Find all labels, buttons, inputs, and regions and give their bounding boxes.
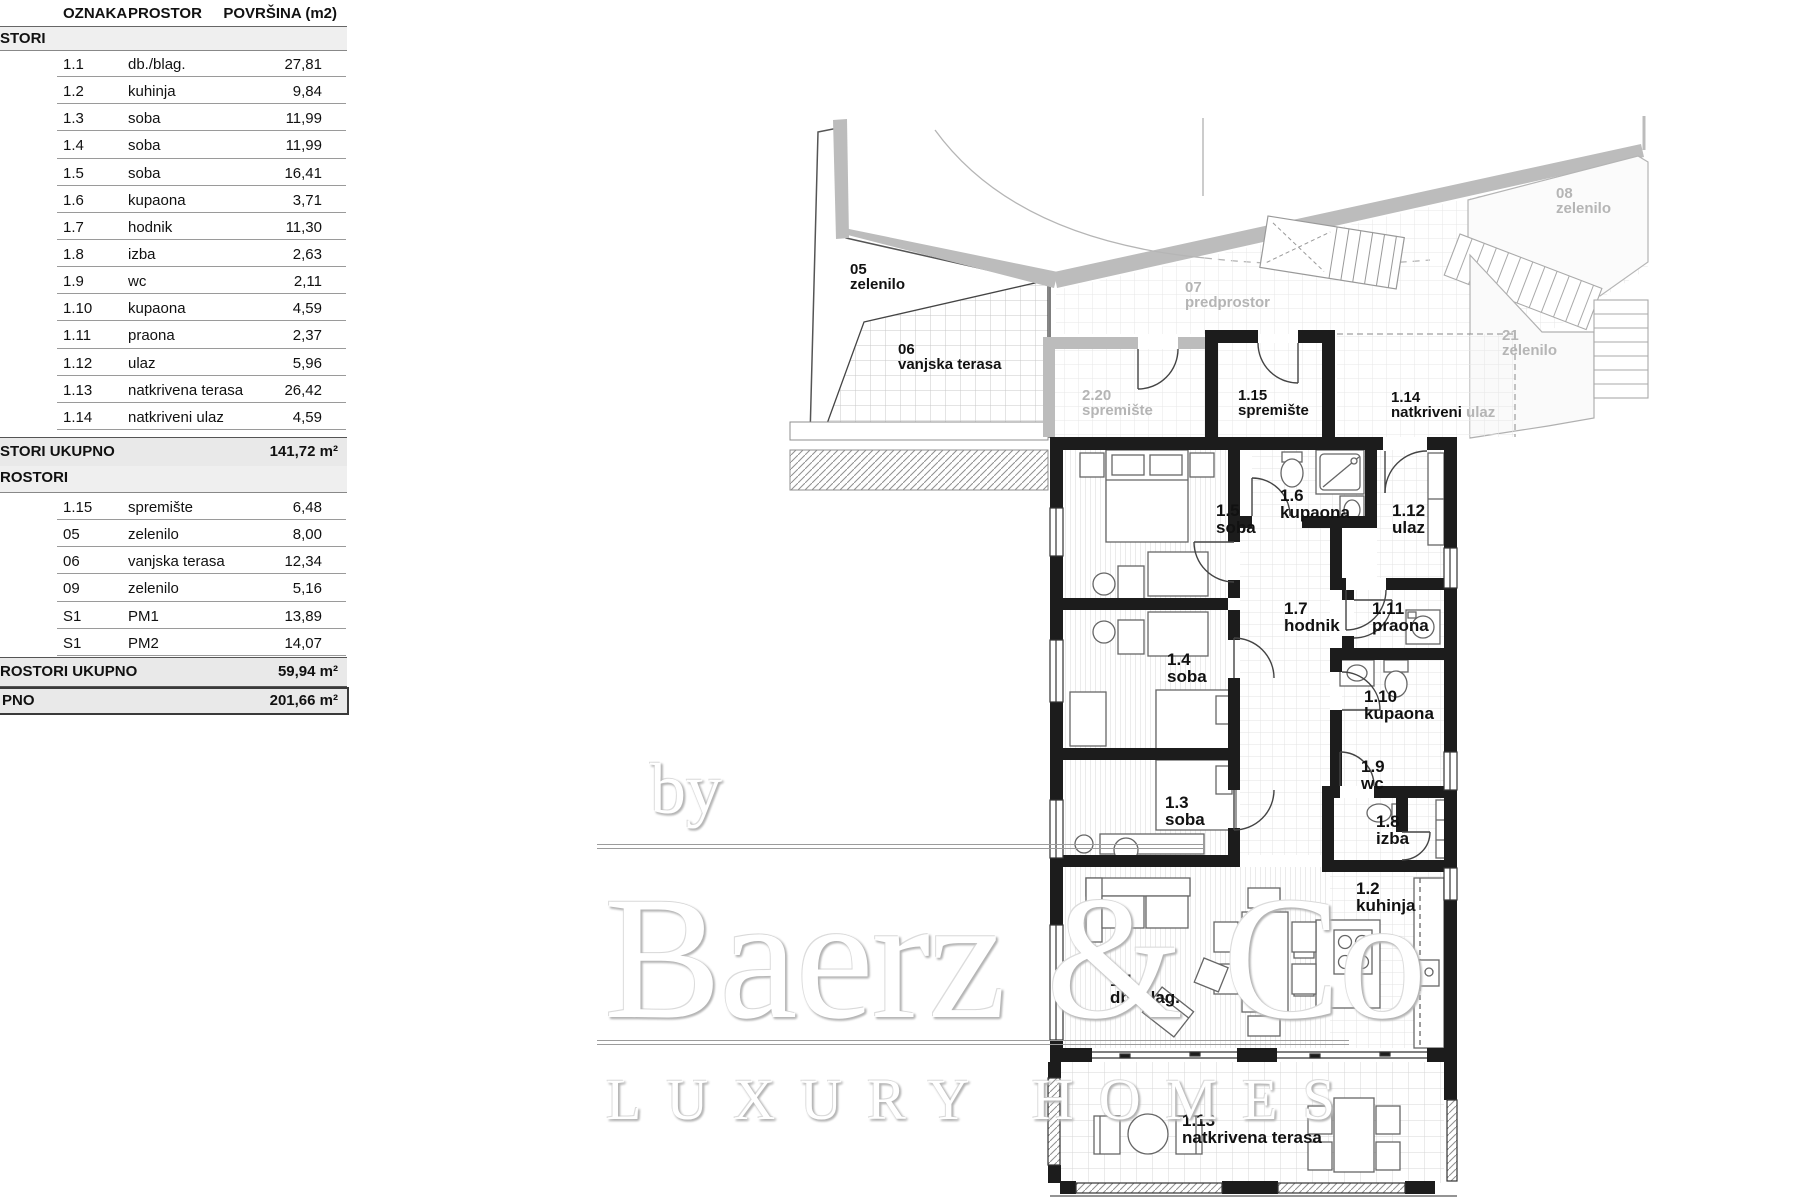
table-row: 1.11 praona 2,37 — [0, 321, 347, 348]
table-row: S1 PM1 13,89 — [0, 602, 347, 629]
table-row: 1.2 kuhinja 9,84 — [0, 77, 347, 104]
table-row: 1.5 soba 16,41 — [0, 159, 347, 186]
col-oznaka: OZNAKA — [63, 5, 127, 22]
section1-rows: 1.1 db./blag. 27,81 1.2 kuhinja 9,84 1.3… — [0, 50, 347, 430]
wardrobe — [1070, 692, 1106, 746]
section1-total: STORI UKUPNO 141,72 m² — [0, 437, 347, 467]
covered-entry-floor — [1337, 334, 1515, 437]
watermark-rule-top — [597, 844, 1205, 849]
section1-band: STORI — [0, 27, 347, 51]
table-header: OZNAKA PROSTOR POVRŠINA (m2) — [0, 0, 347, 27]
section2-band: ROSTORI — [0, 466, 347, 493]
table-row: 1.8 izba 2,63 — [0, 240, 347, 267]
room-label-1-11: 1.11 praona — [1372, 600, 1429, 634]
table-row: 05 zelenilo 8,00 — [0, 520, 347, 547]
room-label-05: 05 zelenilo — [850, 262, 905, 292]
retaining-strip-1 — [790, 422, 1048, 440]
room-label-1-4: 1.4 soba — [1167, 651, 1207, 685]
room-label-06: 06 vanjska terasa — [898, 342, 1001, 372]
window — [1050, 640, 1063, 702]
room-label-21: 21 zelenilo — [1502, 328, 1557, 358]
table-row: 1.9 wc 2,11 — [0, 267, 347, 294]
table-row: S1 PM2 14,07 — [0, 629, 347, 656]
table-row: 1.14 natkriveni ulaz 4,59 — [0, 403, 347, 430]
table-row: 1.12 ulaz 5,96 — [0, 349, 347, 376]
window — [1050, 508, 1063, 556]
watermark-brand: Baerz & Co — [604, 858, 1425, 1060]
room-label-2-20: 2.20 spremište — [1082, 388, 1153, 418]
table-row: 1.13 natkrivena terasa 26,42 — [0, 376, 347, 403]
table-row: 06 vanjska terasa 12,34 — [0, 547, 347, 574]
table-row: 1.7 hodnik 11,30 — [0, 213, 347, 240]
window — [1050, 800, 1063, 858]
room-label-1-15: 1.15 spremište — [1238, 388, 1309, 418]
section2-rows: 1.15 spremište 6,48 05 zelenilo 8,00 06 … — [0, 493, 347, 656]
room-label-1-8: 1.8 izba — [1376, 813, 1409, 847]
retaining-strip-2 — [790, 450, 1048, 490]
table-row: 1.1 db./blag. 27,81 — [0, 50, 347, 77]
room-label-1-12: 1.12 ulaz — [1392, 502, 1425, 536]
table-row: 09 zelenilo 5,16 — [0, 574, 347, 601]
window — [1444, 548, 1457, 588]
watermark-tagline: LUXURY HOMES — [606, 1066, 1360, 1133]
room-label-1-3: 1.3 soba — [1165, 794, 1205, 828]
nightstand — [1190, 453, 1214, 477]
room-label-1-9: 1.9 wc — [1361, 758, 1385, 792]
table-row: 1.15 spremište 6,48 — [0, 493, 347, 520]
window — [1444, 868, 1457, 900]
room-label-1-5: 1.5 soba — [1216, 502, 1256, 536]
table-row: 1.4 soba 11,99 — [0, 131, 347, 158]
room-label-08: 08 zelenilo — [1556, 186, 1611, 216]
section2-total: ROSTORI UKUPNO 59,94 m² — [0, 657, 347, 687]
col-prostor: PROSTOR — [128, 5, 202, 22]
watermark-by: by — [650, 748, 722, 831]
toilet — [1384, 660, 1408, 672]
desk — [1148, 552, 1208, 596]
area-table: OZNAKA PROSTOR POVRŠINA (m2) STORI 1.1 d… — [0, 0, 347, 720]
table-row: 1.6 kupaona 3,71 — [0, 186, 347, 213]
window — [1444, 752, 1457, 790]
driveway-arc — [935, 130, 1205, 258]
room-label-1-7: 1.7 hodnik — [1284, 600, 1340, 634]
room-label-1-10: 1.10 kupaona — [1364, 688, 1434, 722]
grand-total: PNO 201,66 m² — [0, 687, 349, 715]
floorplan-sheet: 05 zelenilo 06 vanjska terasa 2.20 sprem… — [0, 0, 1800, 1200]
room-label-1-6: 1.6 kupaona — [1280, 487, 1350, 521]
chair — [1093, 621, 1115, 643]
room-label-07: 07 predprostor — [1185, 280, 1270, 310]
room-label-1-14: 1.14 natkriveni ulaz — [1391, 390, 1495, 420]
col-povrsina: POVRŠINA (m2) — [223, 5, 337, 22]
watermark-rule-bottom — [597, 1040, 1349, 1045]
chair — [1093, 573, 1115, 595]
stair-right — [1594, 300, 1648, 398]
table-row: 1.10 kupaona 4,59 — [0, 294, 347, 321]
nightstand — [1080, 453, 1104, 477]
table-row: 1.3 soba 11,99 — [0, 104, 347, 131]
